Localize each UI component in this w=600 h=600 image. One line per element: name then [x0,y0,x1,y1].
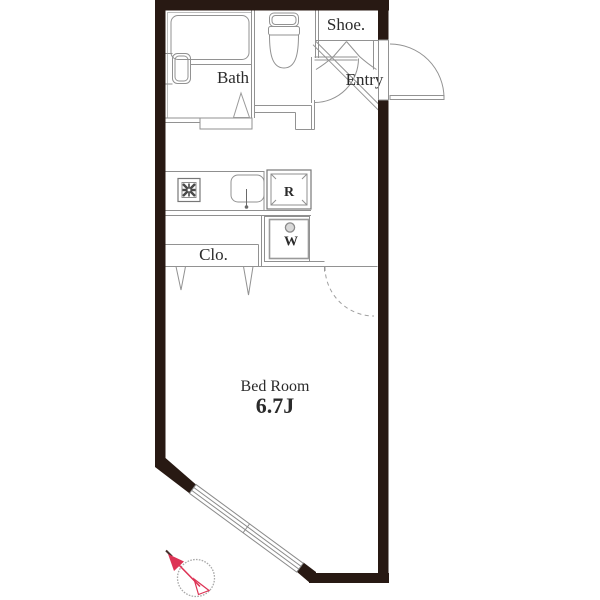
svg-text:Clo.: Clo. [199,245,228,264]
svg-text:W: W [284,235,298,250]
svg-text:Shoe.: Shoe. [327,15,365,34]
svg-text:Bath: Bath [217,68,250,87]
svg-text:6.7J: 6.7J [256,393,295,418]
svg-text:R: R [284,185,295,200]
